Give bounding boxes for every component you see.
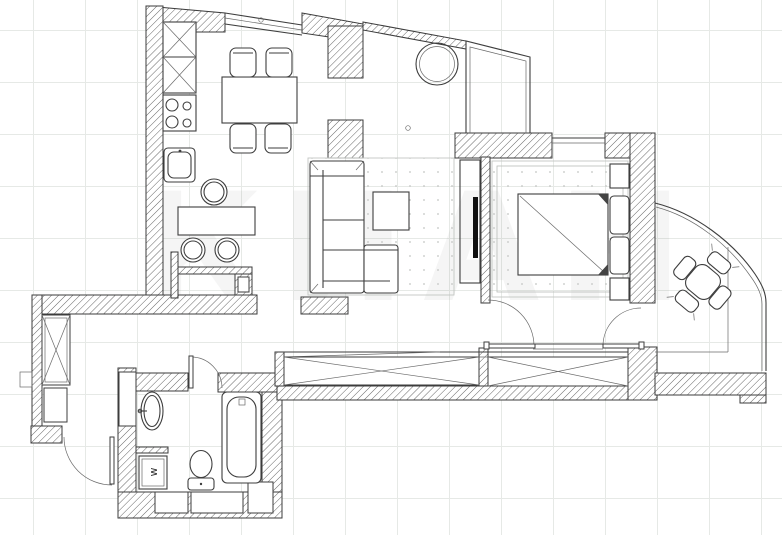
washbasin (138, 392, 163, 430)
washing-machine-label: w (147, 468, 160, 477)
kitchen-living-pier-lower (328, 120, 363, 158)
tv (473, 197, 478, 258)
dining-table (222, 77, 297, 123)
bar-stool-1 (181, 238, 205, 262)
dining-chair-2 (266, 48, 292, 77)
bathroom: w (138, 392, 261, 490)
stove (163, 95, 196, 131)
bar-counter (178, 207, 255, 235)
bathroom-top-wall-left (136, 373, 188, 391)
living-room (308, 43, 480, 295)
entry-door (64, 437, 114, 485)
round-side-table (201, 179, 227, 205)
shoe-cabinet (44, 388, 67, 422)
nightstand-top (610, 164, 629, 188)
balcony-bottom-wall (655, 373, 766, 395)
bathroom-door (189, 356, 222, 388)
floor-plan-canvas: КИАН (0, 0, 782, 535)
bedroom-right-wall (630, 133, 655, 303)
bathroom-right-wall (262, 392, 282, 495)
pillow-2 (610, 237, 629, 274)
bedroom-top-wall-left (455, 133, 552, 158)
nightstand-bottom (610, 278, 629, 300)
tall-cabinet (163, 22, 196, 93)
wardrobe-front-inner-2 (284, 352, 440, 357)
toilet (188, 451, 214, 491)
living-window-parapet (363, 22, 466, 49)
kitchen-peninsula-wall-v (171, 252, 178, 298)
coffee-table (373, 192, 409, 230)
wardrobe-jamb-left (275, 352, 284, 386)
outer-step-lines (20, 372, 32, 387)
bedroom (492, 161, 629, 300)
bathroom-niche-3 (248, 482, 273, 513)
peninsula-notch (238, 277, 249, 292)
kitchen-living-pier-upper (328, 26, 363, 78)
sink-partition (136, 447, 168, 453)
marker-dot (406, 126, 411, 131)
dining-chair-1 (230, 48, 256, 77)
duct-shaft (119, 372, 136, 426)
bedroom-window (552, 138, 605, 143)
kitchen-sink (164, 148, 195, 182)
washing-machine: w (139, 456, 167, 489)
kitchen-window (225, 13, 302, 35)
kitchen-peninsula-wall-h (178, 267, 252, 274)
entry-wardrobe (42, 315, 70, 385)
bay-glazing (466, 41, 530, 133)
bar-stool-2 (215, 238, 239, 262)
pillow-1 (610, 196, 629, 234)
dining-chair-3 (230, 124, 256, 153)
double-bed (518, 194, 608, 275)
bathroom-niche-2 (191, 492, 243, 513)
balcony-bottom-step (740, 395, 766, 403)
bathroom-top-wall-right (218, 373, 282, 392)
bedroom-left-wall (481, 157, 490, 303)
dining-chair-4 (265, 124, 291, 153)
living-corridor-pier (301, 297, 348, 314)
bathroom-niche-1 (155, 492, 188, 513)
entry-door-block (31, 426, 62, 443)
built-in-wardrobe-left (284, 357, 479, 385)
balcony-corner-block (628, 347, 657, 400)
kitchen-left-wall (146, 6, 163, 314)
corridor-top-wall (32, 295, 257, 314)
entry-left-wall (32, 295, 42, 428)
corridor-bottom-wall (277, 386, 630, 400)
bathtub (222, 392, 261, 483)
wardrobe-jamb-mid (479, 348, 488, 386)
built-in-wardrobe-right (488, 357, 628, 386)
hanging-chair (416, 43, 458, 85)
